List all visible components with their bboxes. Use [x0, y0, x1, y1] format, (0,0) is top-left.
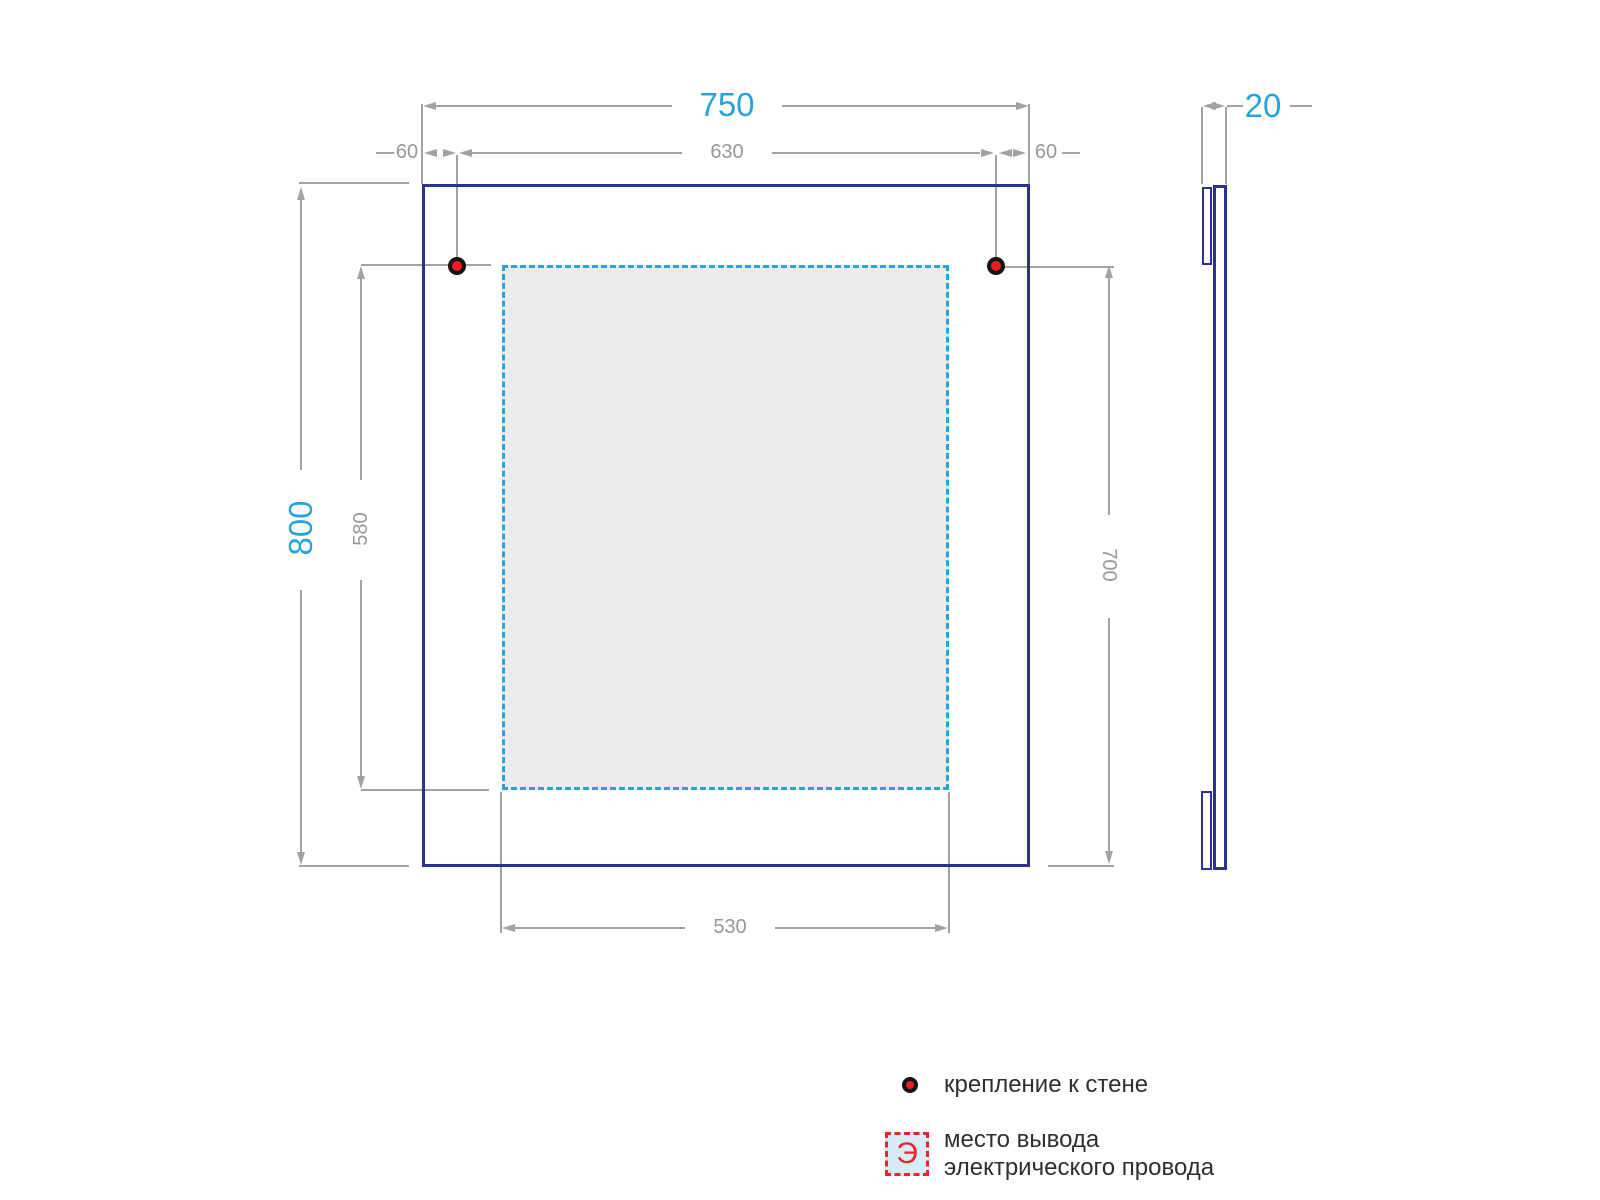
- dim-line-630-a: [472, 152, 682, 154]
- dim-line-800-b: [300, 590, 302, 862]
- dim-line-530-a: [505, 927, 685, 929]
- dim-label-inner-height: 580: [350, 479, 372, 579]
- dim-dash-60-right: [1062, 152, 1080, 154]
- legend-outlet-label-line2: электрического провода: [944, 1154, 1214, 1182]
- mount-point-left: [448, 257, 466, 275]
- side-profile-bracket-top: [1202, 187, 1212, 265]
- legend-outlet-symbol: Э: [896, 1137, 918, 1171]
- dim-line-530-b: [775, 927, 945, 929]
- dim-line-750-b: [782, 105, 1026, 107]
- mirror-front-outline: [422, 184, 1030, 867]
- dim-line-800-a: [300, 190, 302, 470]
- dim-label-overall-width: 750: [672, 87, 782, 123]
- arrowhead-20-right: [1212, 102, 1225, 110]
- arrowhead-630-right: [981, 149, 994, 157]
- dim-label-mount-offset-left: 60: [392, 141, 422, 163]
- dim-line-580-b: [360, 580, 362, 786]
- dim-line-700-a: [1108, 269, 1110, 515]
- dim-line-750-a: [426, 105, 672, 107]
- arrowhead-800-bottom: [297, 852, 305, 865]
- arrowhead-60L-a: [424, 149, 437, 157]
- mirror-side-outline: [1213, 185, 1227, 870]
- dim-label-thickness: 20: [1237, 88, 1289, 124]
- legend-outlet-label-line1: место вывода: [944, 1126, 1214, 1154]
- extension-line-700-bottom: [1048, 865, 1114, 867]
- legend-mount-label: крепление к стене: [944, 1071, 1148, 1099]
- arrowhead-530-right: [935, 924, 948, 932]
- legend-outlet-icon: Э: [885, 1132, 929, 1176]
- dim-line-700-b: [1108, 618, 1110, 860]
- arrowhead-580-bottom: [357, 776, 365, 789]
- dim-line-630-b: [772, 152, 980, 154]
- extension-line-right-edge-top: [1028, 104, 1030, 184]
- dim-label-overall-height: 800: [283, 468, 319, 588]
- technical-drawing: 750 60 630 60 800 580 700 530 20: [0, 0, 1600, 1200]
- arrowhead-60R-a: [999, 149, 1012, 157]
- arrowhead-60R-b: [1013, 149, 1026, 157]
- extension-line-20-right: [1225, 107, 1227, 184]
- arrowhead-750-right: [1016, 102, 1029, 110]
- legend-outlet-label: место вывода электрического провода: [944, 1126, 1214, 1182]
- side-profile-bracket-bottom: [1201, 791, 1212, 870]
- extension-line-800-top: [299, 182, 409, 184]
- mount-point-right: [987, 257, 1005, 275]
- dim-dash-20-right: [1290, 105, 1312, 107]
- dim-label-mount-offset-right: 60: [1031, 141, 1061, 163]
- extension-line-20-left: [1201, 107, 1203, 184]
- dim-line-580-a: [360, 270, 362, 480]
- arrowhead-60L-b: [443, 149, 456, 157]
- dim-label-right-drop: 700: [1098, 515, 1120, 615]
- legend-mount-point-icon: [902, 1077, 918, 1093]
- extension-line-800-bottom: [299, 865, 409, 867]
- dim-label-mount-span: 630: [682, 141, 772, 163]
- dim-label-inner-width: 530: [685, 916, 775, 938]
- arrowhead-700-bottom: [1105, 851, 1113, 864]
- arrowhead-630-left: [459, 149, 472, 157]
